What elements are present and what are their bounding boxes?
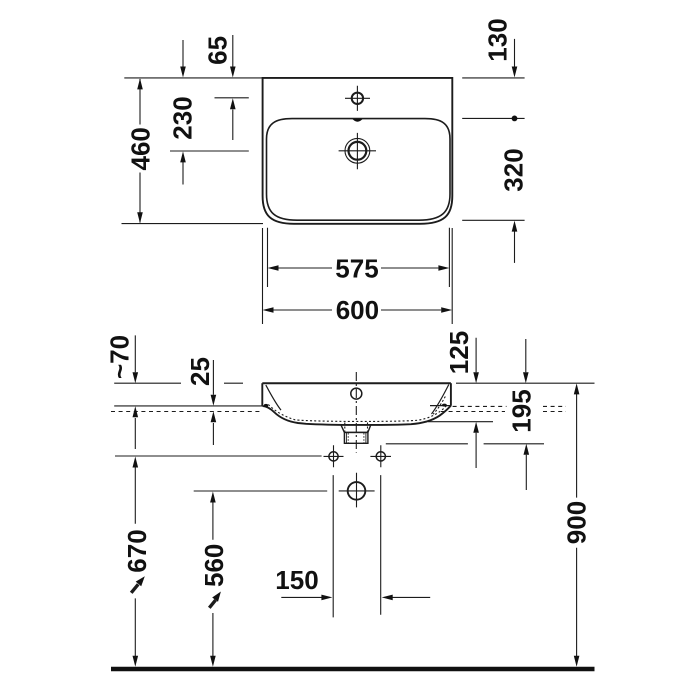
svg-text:125: 125 [444,331,474,374]
svg-text:25: 25 [185,357,215,386]
svg-text:670: 670 [122,529,152,572]
svg-text:575: 575 [335,254,378,284]
svg-text:150: 150 [275,565,318,595]
svg-text:320: 320 [498,148,528,191]
svg-text:~70: ~70 [104,335,134,379]
svg-text:130: 130 [482,18,512,61]
svg-text:230: 230 [167,96,197,139]
svg-text:600: 600 [336,295,379,325]
svg-text:460: 460 [125,127,155,170]
svg-text:65: 65 [203,36,233,65]
svg-text:560: 560 [199,544,229,587]
svg-text:900: 900 [561,501,591,544]
svg-text:195: 195 [506,389,536,432]
